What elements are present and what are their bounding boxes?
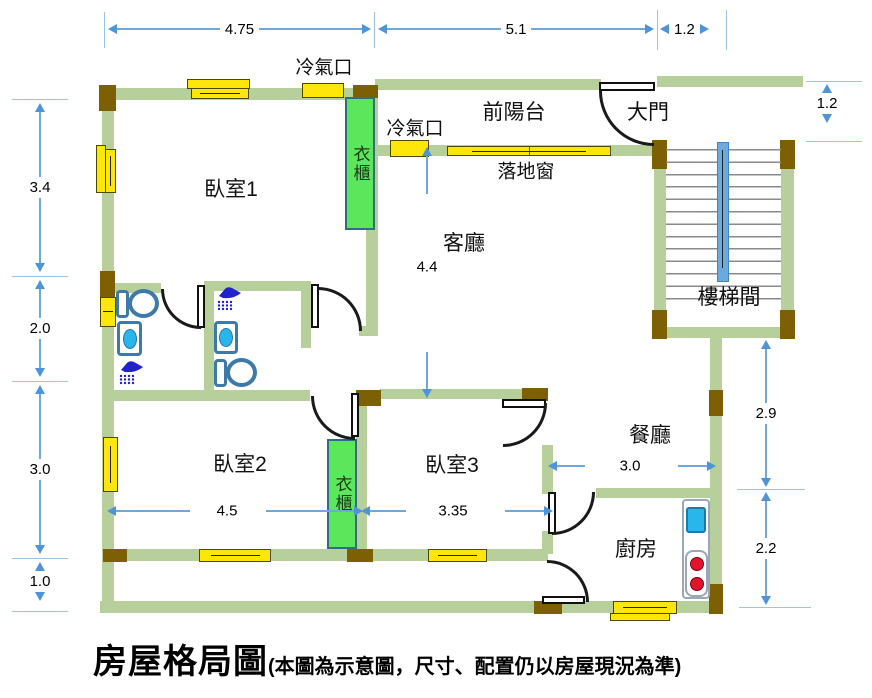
- dimension-right-2: 2.9: [750, 340, 782, 487]
- wall-top-balcony: [375, 79, 601, 90]
- room-label-stairwell: 樓梯間: [698, 281, 761, 311]
- dimension-right-3: 2.2: [750, 492, 782, 605]
- wall-kitchen-top: [596, 488, 722, 498]
- wall-post: [709, 584, 723, 614]
- wall-post: [652, 140, 667, 169]
- arrow-bedroom2-width-left: [116, 510, 190, 512]
- dim-label-bedroom3-width: 3.35: [435, 503, 470, 520]
- sink-basin: [219, 328, 233, 347]
- wall-post: [347, 549, 373, 562]
- dimension-left-1: 3.4: [27, 103, 53, 272]
- dim-label-living-depth: 4.4: [414, 259, 441, 276]
- window: [199, 549, 271, 562]
- shower-icon: [116, 360, 146, 386]
- window: [103, 437, 118, 492]
- dimension-top-2: 5.1: [378, 21, 654, 37]
- wall-post: [780, 310, 795, 339]
- dimension-tick: [806, 81, 862, 82]
- dimension-tick: [726, 10, 727, 50]
- arrow-bedroom3-width-right: [505, 510, 544, 512]
- wall-stair-right: [781, 142, 794, 338]
- wall-top-right: [657, 76, 803, 87]
- window: [191, 88, 249, 99]
- arrow-bedroom3-width-left: [370, 510, 406, 512]
- arrow-dining-width-left: [557, 465, 585, 467]
- door-swing: [552, 492, 595, 535]
- ac-vent-box: [302, 83, 344, 98]
- dimension-tick: [739, 607, 811, 608]
- dimension-tick: [737, 489, 805, 490]
- door-swing: [547, 560, 589, 602]
- wall-post: [99, 85, 116, 111]
- floor-window: [447, 146, 611, 156]
- wardrobe-bedroom1: 衣櫃: [345, 97, 375, 230]
- wall-post: [103, 549, 127, 562]
- wardrobe-bedroom2: 衣櫃: [327, 439, 357, 549]
- dimension-tick: [104, 12, 105, 48]
- window: [610, 613, 670, 621]
- wall-stair-left: [654, 142, 666, 338]
- wall-post: [100, 271, 115, 297]
- toilet-bowl: [226, 358, 257, 387]
- door-swing: [161, 289, 201, 329]
- arrow-bedroom2-width-right: [266, 510, 354, 512]
- room-label-bedroom2: 臥室2: [213, 448, 267, 478]
- dimension-tick: [12, 381, 68, 382]
- door-swing: [311, 396, 355, 440]
- kitchen-sink: [686, 507, 706, 533]
- wall-post: [356, 390, 381, 406]
- stair-rail-line: [722, 150, 723, 268]
- dimension-tick: [12, 611, 68, 612]
- wardrobe-label: 衣櫃: [348, 145, 373, 183]
- window: [428, 549, 487, 562]
- dimension-tick: [657, 10, 658, 50]
- wall-stair-bottom: [654, 327, 794, 338]
- label-ac-vent-1: 冷氣口: [295, 53, 352, 80]
- wall-post: [709, 390, 723, 416]
- dim-label-bedroom2-width: 4.5: [214, 503, 241, 520]
- dimension-tick: [12, 558, 68, 559]
- dimension-tick: [12, 99, 68, 100]
- dim-label-dining-width: 3.0: [617, 458, 644, 475]
- window: [100, 297, 116, 327]
- room-label-dining: 餐廳: [629, 419, 671, 449]
- wardrobe-label: 衣櫃: [330, 475, 355, 513]
- dimension-tick: [806, 141, 862, 142]
- sink-basin: [123, 329, 137, 349]
- arrow-living-depth-bottom: [426, 352, 428, 389]
- shower-icon: [214, 286, 244, 312]
- label-floor-window: 落地窗: [497, 157, 554, 184]
- title-main: 房屋格局圖: [93, 634, 268, 683]
- room-label-bedroom3: 臥室3: [425, 449, 479, 479]
- arrow-living-depth-top: [426, 156, 428, 194]
- floor-plan: 衣櫃 衣櫃: [0, 0, 872, 698]
- room-label-balcony: 前陽台: [483, 96, 546, 126]
- wall-post: [780, 140, 795, 169]
- wall-bath2-right: [301, 283, 311, 348]
- room-label-bedroom1: 臥室1: [204, 173, 258, 203]
- title-subtitle: (本圖為示意圖，尺寸、配置仍以房屋現況為準): [268, 650, 681, 679]
- label-ac-vent-2: 冷氣口: [386, 114, 443, 141]
- wall-dining-right: [710, 338, 722, 613]
- main-door-leaf: [599, 82, 655, 91]
- page-title: 房屋格局圖(本圖為示意圖，尺寸、配置仍以房屋現況為準): [93, 634, 681, 683]
- dimension-tick: [12, 276, 68, 277]
- dimension-top-1: 4.75: [108, 21, 371, 37]
- wall-bedroom2-top: [102, 390, 310, 401]
- toilet-bowl: [128, 289, 159, 318]
- dimension-left-2: 2.0: [27, 280, 53, 377]
- stove-burner: [690, 577, 704, 591]
- window: [105, 149, 116, 193]
- dimension-left-3: 3.0: [27, 385, 53, 554]
- room-label-living: 客廳: [443, 227, 485, 257]
- arrow-dining-width-right: [678, 465, 707, 467]
- stair-rail: [717, 142, 729, 282]
- door-swing: [318, 287, 362, 331]
- wall-post: [652, 310, 667, 339]
- room-label-kitchen: 廚房: [615, 533, 657, 563]
- dimension-top-3: 1.2: [660, 21, 724, 37]
- dimension-right-1: 1.2: [814, 84, 840, 139]
- dimension-tick: [374, 12, 375, 48]
- wall-bath-divider: [204, 283, 214, 395]
- room-label-main-door: 大門: [627, 96, 669, 126]
- stove-burner: [690, 557, 704, 571]
- dimension-left-4: 1.0: [27, 562, 53, 608]
- door-swing: [503, 403, 547, 447]
